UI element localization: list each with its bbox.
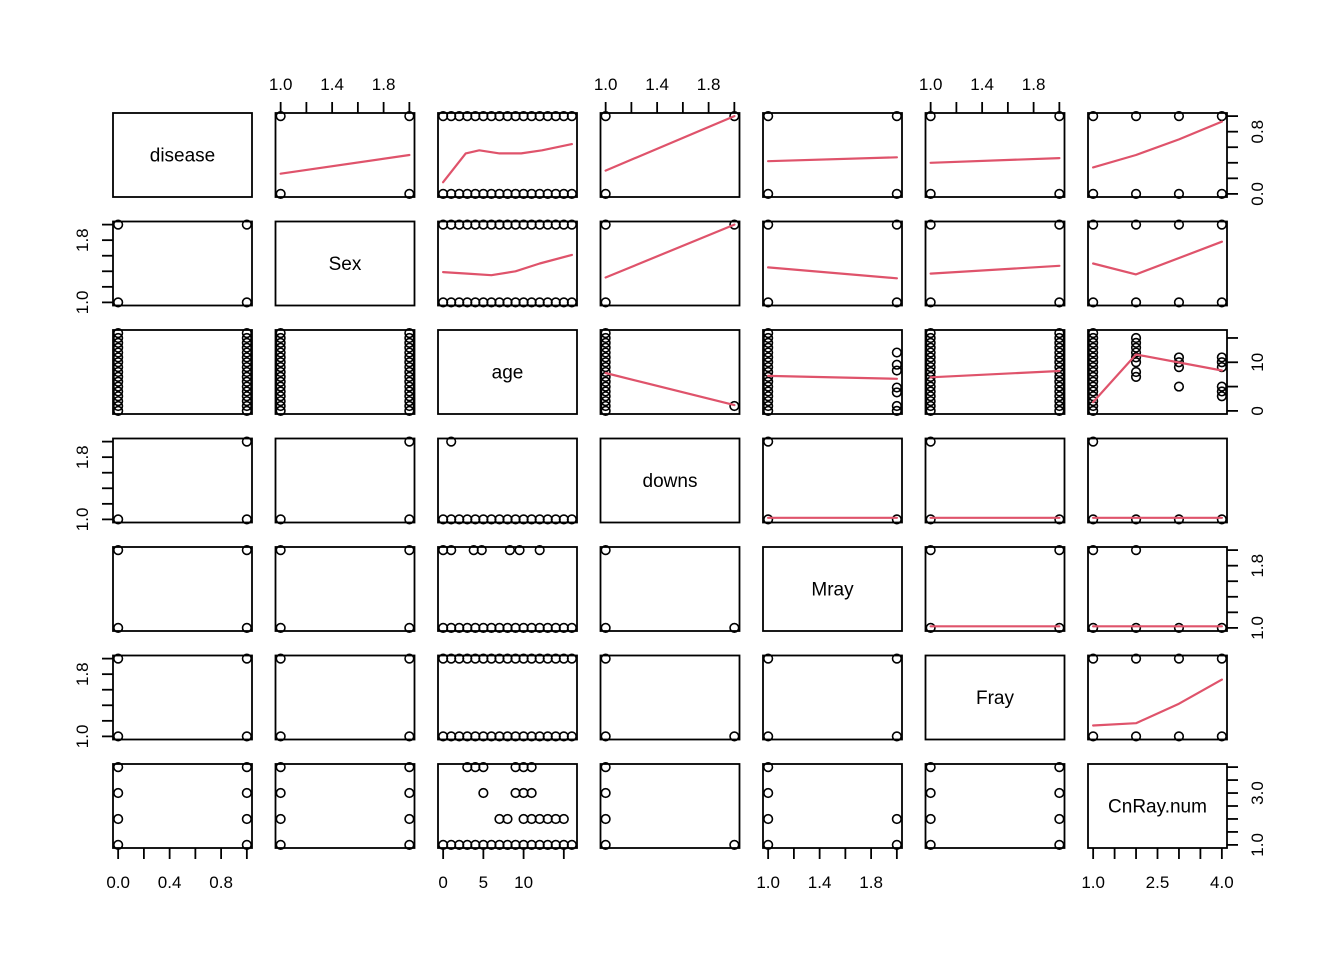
panel-CnRay.num-vs-Mray	[763, 763, 902, 849]
points-disease-vs-age	[439, 112, 576, 198]
data-point	[405, 815, 414, 824]
points-Sex-vs-downs	[601, 220, 738, 306]
panel-CnRay.num-vs-downs	[601, 763, 740, 849]
data-point	[893, 360, 902, 369]
data-point	[926, 815, 935, 824]
diagonal-label-Mray: Mray	[811, 580, 854, 601]
panel-frame	[1088, 330, 1227, 414]
diagonal-label-Fray: Fray	[976, 688, 1015, 709]
panel-age-vs-CnRay.num	[1088, 329, 1227, 415]
tick-label: 0.4	[158, 873, 182, 892]
panel-disease-vs-Fray	[926, 112, 1065, 198]
panel-CnRay.num-vs-CnRay.num: CnRay.num	[1088, 764, 1227, 848]
panel-age-vs-Mray	[763, 329, 902, 415]
smooth-line	[443, 255, 572, 275]
points-disease-vs-Fray	[926, 112, 1063, 198]
tick-label: 1.0	[1248, 833, 1267, 857]
points-Fray-vs-age	[439, 654, 576, 740]
axis-bottom-CnRay.num: 1.02.54.0	[1081, 848, 1233, 892]
panel-frame	[438, 547, 577, 631]
panel-Fray-vs-Fray: Fray	[926, 656, 1065, 740]
panel-age-vs-Sex	[276, 329, 415, 415]
data-point	[601, 815, 610, 824]
points-Sex-vs-Fray	[926, 220, 1063, 306]
panel-age-vs-downs	[601, 329, 740, 415]
panel-age-vs-age: age	[438, 330, 577, 414]
panel-frame	[276, 439, 415, 523]
axis-bottom-age: 0510	[438, 848, 563, 892]
panel-frame	[763, 113, 902, 197]
smooth-line	[931, 158, 1060, 163]
panel-Sex-vs-Fray	[926, 220, 1065, 306]
points-Fray-vs-Mray	[764, 654, 901, 740]
panel-Mray-vs-Mray: Mray	[763, 547, 902, 631]
smooth-line	[1093, 242, 1222, 275]
diagonal-label-CnRay.num: CnRay.num	[1108, 797, 1207, 818]
panel-disease-vs-Mray	[763, 112, 902, 198]
diagonal-label-downs: downs	[643, 471, 698, 492]
axis-top-Sex: 1.01.41.8	[269, 75, 410, 113]
panel-frame	[763, 764, 902, 848]
panel-Sex-vs-age	[438, 220, 577, 306]
points-CnRay.num-vs-Sex	[276, 763, 413, 849]
smooth-line	[281, 155, 410, 174]
tick-label: 1.8	[859, 873, 883, 892]
tick-label: 1.4	[808, 873, 832, 892]
tick-label: 0	[1248, 406, 1267, 415]
data-point	[926, 789, 935, 798]
tick-label: 1.0	[756, 873, 780, 892]
panel-frame	[763, 439, 902, 523]
panel-frame	[113, 547, 252, 631]
data-point	[243, 789, 252, 798]
panel-age-vs-disease	[113, 329, 252, 415]
tick-label: 1.8	[372, 75, 396, 94]
tick-label: 0.0	[106, 873, 130, 892]
panel-Sex-vs-downs	[601, 220, 740, 306]
pairs-plot-figure: diseaseSexagedownsMrayFrayCnRay.num1.01.…	[0, 0, 1344, 960]
pairs-plot-svg: diseaseSexagedownsMrayFrayCnRay.num1.01.…	[0, 0, 1344, 960]
diagonal-label-age: age	[492, 363, 524, 384]
smooth-line	[931, 371, 1060, 377]
points-Sex-vs-CnRay.num	[1089, 220, 1226, 306]
points-age-vs-downs	[601, 329, 738, 415]
tick-label: 1.4	[645, 75, 669, 94]
points-downs-vs-Mray	[764, 437, 901, 523]
data-point	[479, 789, 488, 798]
panel-frame	[438, 764, 577, 848]
panel-frame	[438, 656, 577, 740]
panel-frame	[276, 330, 415, 414]
panel-frame	[113, 330, 252, 414]
tick-label: 1.8	[73, 228, 92, 252]
panel-frame	[276, 113, 415, 197]
tick-label: 1.0	[919, 75, 943, 94]
smooth-line	[1093, 355, 1222, 403]
panel-Mray-vs-Fray	[926, 546, 1065, 632]
points-disease-vs-Mray	[764, 112, 901, 198]
panel-Fray-vs-age	[438, 654, 577, 740]
tick-label: 1.0	[1248, 616, 1267, 640]
axis-left-downs: 1.01.8	[73, 442, 113, 532]
panel-frame	[276, 764, 415, 848]
points-Fray-vs-downs	[601, 654, 738, 740]
panel-frame	[276, 656, 415, 740]
tick-label: 1.4	[970, 75, 994, 94]
smooth-line	[931, 266, 1060, 274]
panel-disease-vs-disease: disease	[113, 113, 252, 197]
panel-frame	[926, 439, 1065, 523]
points-Fray-vs-Sex	[276, 654, 413, 740]
panel-frame	[601, 656, 740, 740]
panel-frame	[438, 113, 577, 197]
panel-frame	[113, 656, 252, 740]
points-age-vs-CnRay.num	[1089, 329, 1226, 415]
smooth-line	[768, 267, 897, 278]
axis-top-Fray: 1.01.41.8	[919, 75, 1060, 113]
points-age-vs-Mray	[764, 329, 901, 415]
points-CnRay.num-vs-downs	[601, 763, 738, 849]
tick-label: 0.0	[1248, 182, 1267, 206]
tick-label: 2.5	[1146, 873, 1170, 892]
panel-disease-vs-age	[438, 112, 577, 198]
points-downs-vs-disease	[114, 437, 251, 523]
tick-label: 10	[514, 873, 533, 892]
panel-age-vs-Fray	[926, 329, 1065, 415]
data-point	[764, 789, 773, 798]
panel-downs-vs-downs: downs	[601, 439, 740, 523]
smooth-line	[768, 157, 897, 161]
panel-Sex-vs-CnRay.num	[1088, 220, 1227, 306]
data-point	[114, 815, 123, 824]
axis-top-downs: 1.01.41.8	[594, 75, 735, 113]
points-Fray-vs-CnRay.num	[1089, 654, 1226, 740]
panel-frame	[438, 439, 577, 523]
panel-downs-vs-disease	[113, 437, 252, 523]
tick-label: 1.0	[73, 725, 92, 749]
smooth-line	[1093, 122, 1222, 168]
axis-bottom-disease: 0.00.40.8	[106, 848, 247, 892]
data-point	[243, 815, 252, 824]
points-disease-vs-CnRay.num	[1089, 112, 1226, 198]
panel-CnRay.num-vs-Fray	[926, 763, 1065, 849]
panel-Mray-vs-disease	[113, 546, 252, 632]
panel-Sex-vs-Sex: Sex	[276, 222, 415, 306]
panel-CnRay.num-vs-age	[438, 763, 577, 849]
panel-Mray-vs-CnRay.num	[1088, 546, 1227, 632]
panel-downs-vs-Sex	[276, 437, 415, 523]
panel-Fray-vs-Sex	[276, 654, 415, 740]
panel-frame	[926, 113, 1065, 197]
axis-left-Sex: 1.01.8	[73, 225, 113, 315]
panel-frame	[113, 222, 252, 306]
smooth-line	[606, 373, 735, 405]
axis-right-CnRay.num: 1.03.0	[1227, 767, 1267, 857]
tick-label: 1.0	[594, 75, 618, 94]
panel-frame	[1088, 222, 1227, 306]
axis-right-disease: 0.00.8	[1227, 116, 1267, 206]
axis-bottom-Mray: 1.01.41.8	[756, 848, 897, 892]
tick-label: 1.8	[1248, 554, 1267, 578]
panel-frame	[276, 547, 415, 631]
panel-downs-vs-Fray	[926, 437, 1065, 523]
tick-label: 1.8	[1022, 75, 1046, 94]
data-point	[893, 348, 902, 357]
smooth-line	[1093, 680, 1222, 726]
panel-Mray-vs-age	[438, 546, 577, 632]
panel-Fray-vs-disease	[113, 654, 252, 740]
data-point	[893, 815, 902, 824]
points-Fray-vs-disease	[114, 654, 251, 740]
data-point	[1175, 382, 1184, 391]
panel-frame	[601, 764, 740, 848]
data-point	[601, 789, 610, 798]
points-Mray-vs-CnRay.num	[1089, 546, 1226, 632]
points-CnRay.num-vs-Fray	[926, 763, 1063, 849]
points-age-vs-Sex	[276, 329, 413, 415]
tick-label: 0	[438, 873, 447, 892]
data-point	[276, 789, 285, 798]
panel-frame	[926, 764, 1065, 848]
panel-frame	[113, 764, 252, 848]
points-disease-vs-Sex	[276, 112, 413, 198]
panel-frame	[113, 439, 252, 523]
tick-label: 0.8	[209, 873, 233, 892]
tick-label: 1.0	[269, 75, 293, 94]
tick-label: 0.8	[1248, 120, 1267, 144]
panel-frame	[1088, 547, 1227, 631]
smooth-line	[606, 225, 735, 278]
axis-right-Mray: 1.01.8	[1227, 550, 1267, 640]
points-Mray-vs-age	[439, 546, 576, 632]
tick-label: 10	[1248, 353, 1267, 372]
points-disease-vs-downs	[601, 112, 738, 198]
panel-frame	[1088, 439, 1227, 523]
tick-label: 1.8	[697, 75, 721, 94]
tick-label: 5	[479, 873, 488, 892]
data-point	[1055, 815, 1064, 824]
tick-label: 3.0	[1248, 781, 1267, 805]
panel-frame	[926, 547, 1065, 631]
points-CnRay.num-vs-age	[439, 763, 576, 849]
diagonal-label-Sex: Sex	[329, 254, 362, 275]
tick-label: 1.0	[1081, 873, 1105, 892]
points-downs-vs-Sex	[276, 437, 413, 523]
panel-CnRay.num-vs-Sex	[276, 763, 415, 849]
points-Sex-vs-age	[439, 220, 576, 306]
panel-frame	[601, 113, 740, 197]
points-Mray-vs-Sex	[276, 546, 413, 632]
data-point	[114, 789, 123, 798]
panel-frame	[763, 330, 902, 414]
points-CnRay.num-vs-Mray	[764, 763, 901, 849]
tick-label: 4.0	[1210, 873, 1234, 892]
points-CnRay.num-vs-disease	[114, 763, 251, 849]
smooth-line	[768, 376, 897, 379]
smooth-line	[606, 116, 735, 171]
panel-Fray-vs-downs	[601, 654, 740, 740]
tick-label: 1.0	[73, 291, 92, 315]
panel-downs-vs-Mray	[763, 437, 902, 523]
points-Mray-vs-Fray	[926, 546, 1063, 632]
panel-frame	[601, 547, 740, 631]
axis-right-age: 010	[1227, 338, 1267, 416]
panel-Mray-vs-Sex	[276, 546, 415, 632]
panel-disease-vs-downs	[601, 112, 740, 198]
smooth-line	[443, 144, 572, 182]
panel-Mray-vs-downs	[601, 546, 740, 632]
tick-label: 1.8	[73, 662, 92, 686]
tick-label: 1.0	[73, 508, 92, 532]
panel-frame	[438, 222, 577, 306]
points-Sex-vs-Mray	[764, 220, 901, 306]
points-Mray-vs-disease	[114, 546, 251, 632]
panel-Fray-vs-CnRay.num	[1088, 654, 1227, 740]
panel-frame	[763, 656, 902, 740]
panel-frame	[763, 222, 902, 306]
data-point	[764, 815, 773, 824]
panel-Fray-vs-Mray	[763, 654, 902, 740]
tick-label: 1.4	[320, 75, 344, 94]
tick-label: 1.8	[73, 445, 92, 469]
data-point	[276, 815, 285, 824]
panel-disease-vs-CnRay.num	[1088, 112, 1227, 198]
panel-downs-vs-age	[438, 437, 577, 523]
panel-Sex-vs-Mray	[763, 220, 902, 306]
panel-frame	[601, 222, 740, 306]
panel-downs-vs-CnRay.num	[1088, 437, 1227, 523]
axis-left-Fray: 1.01.8	[73, 659, 113, 749]
points-downs-vs-CnRay.num	[1089, 437, 1226, 523]
data-point	[405, 789, 414, 798]
panel-frame	[1088, 113, 1227, 197]
data-point	[1055, 789, 1064, 798]
points-Sex-vs-disease	[114, 220, 251, 306]
points-Mray-vs-downs	[601, 546, 738, 632]
points-downs-vs-Fray	[926, 437, 1063, 523]
panel-CnRay.num-vs-disease	[113, 763, 252, 849]
panel-Sex-vs-disease	[113, 220, 252, 306]
points-age-vs-disease	[114, 329, 251, 415]
panel-disease-vs-Sex	[276, 112, 415, 198]
panel-frame	[926, 222, 1065, 306]
diagonal-label-disease: disease	[150, 146, 216, 167]
panel-frame	[1088, 656, 1227, 740]
points-downs-vs-age	[439, 437, 576, 523]
